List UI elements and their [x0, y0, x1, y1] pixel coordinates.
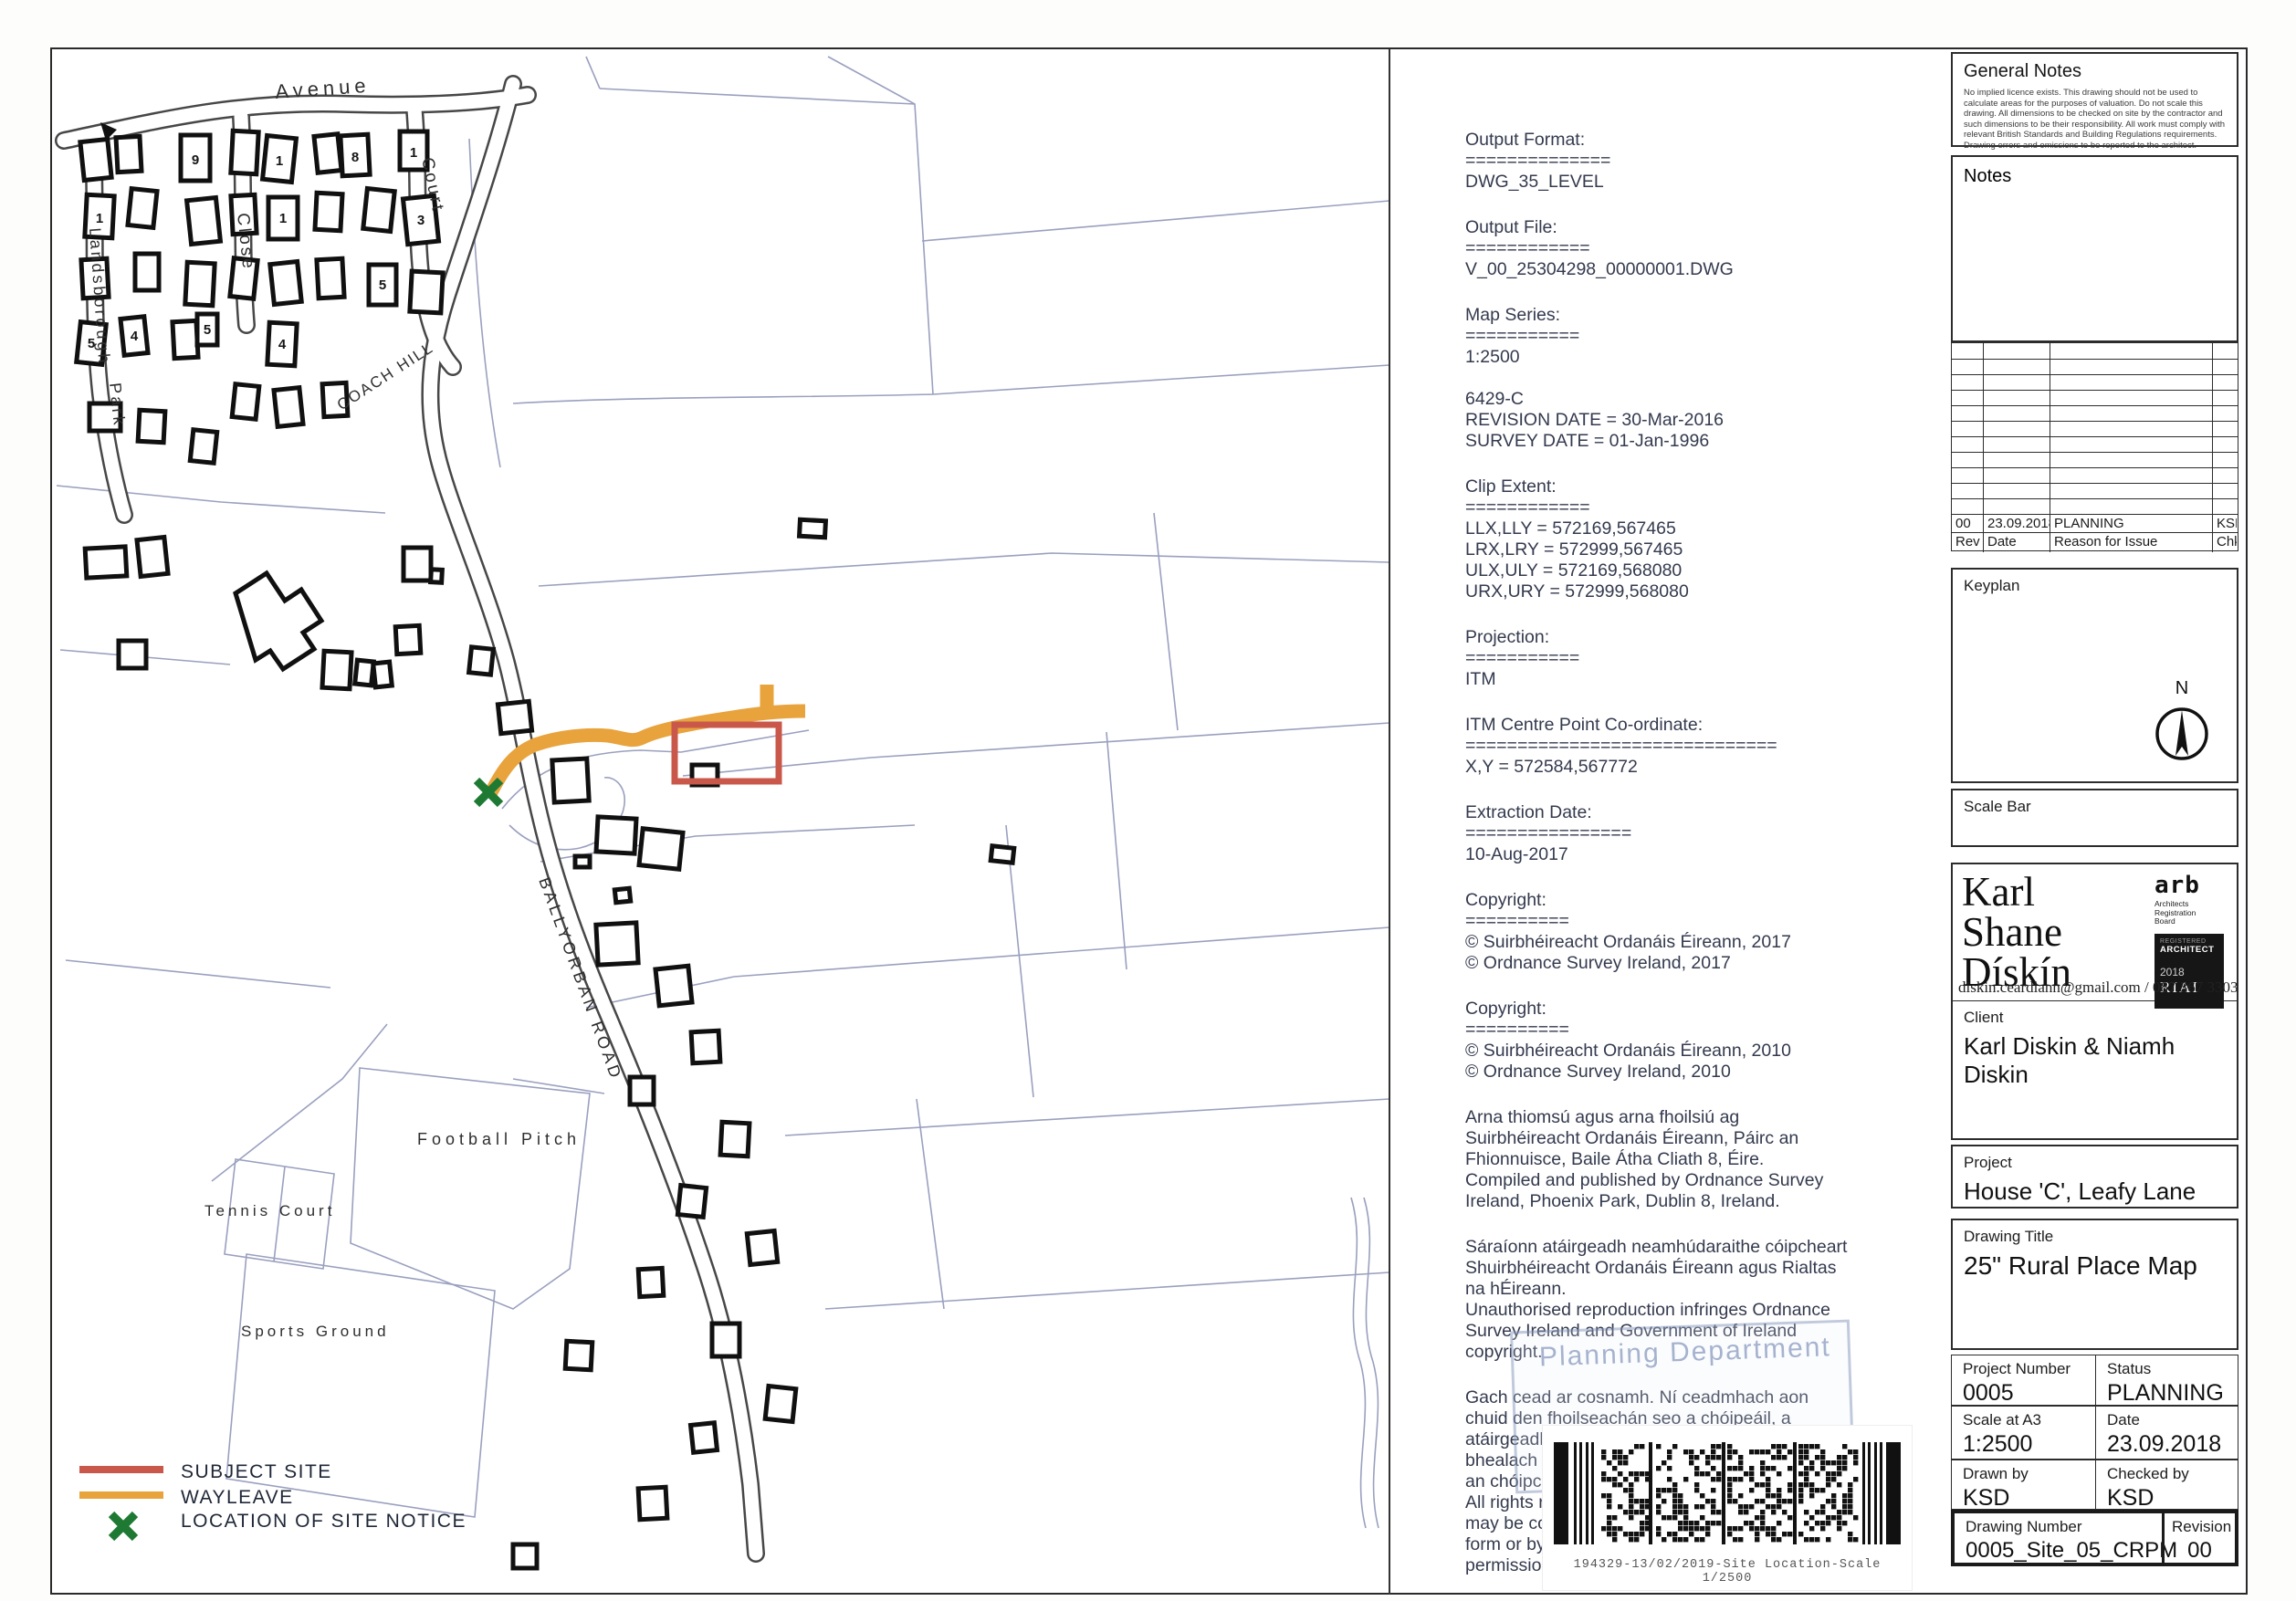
legend-label: WAYLEAVE: [181, 1487, 294, 1508]
drawing-number-cell: Drawing Number 0005_Site_05_CRPM: [1955, 1513, 2162, 1563]
notes-title: Notes: [1953, 157, 2237, 187]
north-arrow-icon: N: [2147, 677, 2217, 770]
client-label: Client: [1953, 1001, 2237, 1027]
riai-registered-architect-badge: REGISTERED ARCHITECT 2018 RIAI: [2154, 934, 2224, 1009]
architect-contact: diskin.ceardlann@gmail.com / 087 367 330…: [1958, 978, 2235, 997]
scale-bar-box: Scale Bar: [1951, 789, 2238, 847]
map-house-number: 3: [417, 213, 425, 228]
barcode-image: [1554, 1439, 1901, 1548]
drawing-title-value: 25" Rural Place Map: [1953, 1246, 2237, 1281]
map-house-number: 5: [204, 322, 211, 338]
metadata-section: Clip Extent: ============ LLX,LLY = 5721…: [1465, 476, 1913, 602]
map-house-number: 1: [410, 145, 417, 161]
arb-logo-subtext: Architects Registration Board: [2154, 900, 2228, 926]
revision-row-empty: [1952, 452, 2238, 467]
drawing-title-label: Drawing Title: [1953, 1220, 2237, 1246]
revision-row-empty: [1952, 405, 2238, 421]
map-house-number: 5: [379, 277, 386, 293]
row-scale-date: Scale at A3 1:2500 Date 23.09.2018: [1951, 1406, 2238, 1460]
revision-row-empty: [1952, 421, 2238, 436]
keyplan-title: Keyplan: [1953, 570, 2237, 595]
scale-bar-title: Scale Bar: [1953, 790, 2237, 816]
project-number-cell: Project Number 0005: [1952, 1355, 2095, 1405]
map-house-number: 1: [279, 211, 287, 226]
general-notes-box: General Notes No implied licence exists.…: [1951, 52, 2238, 147]
metadata-section: Copyright: ========== © Suirbhéireacht O…: [1465, 890, 1913, 974]
revision-row-empty: [1952, 467, 2238, 483]
metadata-section: Output Format: ============== DWG_35_LEV…: [1465, 130, 1913, 193]
map-area-label: Football Pitch: [417, 1130, 581, 1148]
map-house-number: 4: [278, 337, 287, 352]
legend-swatch-subject-site: [79, 1466, 163, 1473]
barcode-caption: 194329-13/02/2019-Site Location-Scale 1/…: [1554, 1558, 1901, 1585]
client-value: Karl Diskin & Niamh Diskin: [1953, 1027, 2237, 1089]
map-house-number: 1: [276, 153, 283, 169]
map-legend: SUBJECT SITEWAYLEAVELOCATION OF SITE NOT…: [79, 1461, 467, 1538]
site-location-map: AvenueCloseCourtLandsboroughParkCOACH HI…: [52, 49, 1394, 1595]
legend-swatch-wayleave: [79, 1491, 163, 1499]
map-area-label: Tennis Court: [204, 1202, 335, 1219]
metadata-section: ITM Centre Point Co-ordinate: ==========…: [1465, 715, 1913, 778]
general-notes-title: General Notes: [1953, 54, 2237, 86]
row-drawing-number-revision: Drawing Number 0005_Site_05_CRPM Revisio…: [1951, 1510, 2238, 1566]
map-house-number: 5: [88, 336, 95, 351]
date-cell: Date 23.09.2018: [2095, 1407, 2239, 1459]
registration-barcode-label: 194329-13/02/2019-Site Location-Scale 1/…: [1543, 1426, 1912, 1590]
revision-row-empty: [1952, 374, 2238, 390]
row-project-number-status: Project Number 0005 Status PLANNING: [1951, 1355, 2238, 1406]
project-value: House 'C', Leafy Lane: [1953, 1172, 2237, 1206]
revision-row: 0023.09.2018PLANNINGKSD: [1952, 514, 2238, 532]
drawing-sheet-scan: AvenueCloseCourtLandsboroughParkCOACH HI…: [0, 0, 2296, 1601]
legend-site-notice-icon: [111, 1514, 135, 1538]
row-drawn-checked: Drawn by KSD Checked by KSD: [1951, 1460, 2238, 1510]
map-house-number: 8: [351, 150, 359, 165]
copyright-paragraph: Arna thiomsú agus arna fhoilsiú ag Suirb…: [1465, 1107, 1913, 1212]
project-box: Project House 'C', Leafy Lane: [1951, 1145, 2238, 1209]
revision-row-empty: [1952, 359, 2238, 374]
metadata-section: Copyright: ========== © Suirbhéireacht O…: [1465, 999, 1913, 1083]
title-block-grid: Project Number 0005 Status PLANNING Scal…: [1951, 1355, 2238, 1566]
metadata-section: Extraction Date: ================ 10-Aug…: [1465, 802, 1913, 865]
sheet-border: AvenueCloseCourtLandsboroughParkCOACH HI…: [50, 47, 2248, 1595]
revision-table: 0023.09.2018PLANNINGKSDRevDateReason for…: [1951, 342, 2238, 551]
map-house-number: 4: [131, 329, 139, 344]
revision-row-empty: [1952, 498, 2238, 514]
metadata-section: Output File: ============ V_00_25304298_…: [1465, 217, 1913, 280]
map-house-number: 9: [192, 152, 199, 168]
arb-logo: arb: [2154, 872, 2228, 899]
general-notes-body: No implied licence exists. This drawing …: [1953, 86, 2237, 151]
revision-row: RevDateReason for IssueChk: [1952, 532, 2238, 552]
map-area-label: Sports Ground: [241, 1323, 390, 1340]
checked-by-cell: Checked by KSD: [2095, 1460, 2239, 1509]
status-cell: Status PLANNING: [2095, 1355, 2239, 1405]
revision-row-empty: [1952, 343, 2238, 359]
legend-label: LOCATION OF SITE NOTICE: [181, 1511, 467, 1532]
map-road-label: BALLYORBAN ROAD: [535, 875, 625, 1083]
stamp-title: Planning Department: [1538, 1332, 1848, 1374]
revision-row-empty: [1952, 436, 2238, 452]
map-house-number: 1: [96, 211, 103, 226]
scale-cell: Scale at A3 1:2500: [1952, 1407, 2095, 1459]
drawn-by-cell: Drawn by KSD: [1952, 1460, 2095, 1509]
client-cell: Client Karl Diskin & Niamh Diskin: [1953, 1001, 2237, 1138]
revision-row-empty: [1952, 483, 2238, 498]
north-label: N: [2175, 678, 2188, 698]
drawing-title-box: Drawing Title 25" Rural Place Map: [1951, 1219, 2238, 1350]
keyplan-box: Keyplan N: [1951, 568, 2238, 783]
architect-identity: Karl Shane Dískín arb Architects Registr…: [1953, 864, 2237, 1001]
notes-box: Notes: [1951, 155, 2238, 342]
metadata-section: Projection: =========== ITM: [1465, 627, 1913, 690]
metadata-section: Map Series: =========== 1:2500 6429-C RE…: [1465, 305, 1913, 452]
revision-row-empty: [1952, 390, 2238, 405]
architect-brand-box: Karl Shane Dískín arb Architects Registr…: [1951, 863, 2238, 1140]
project-label: Project: [1953, 1146, 2237, 1172]
legend-label: SUBJECT SITE: [181, 1461, 332, 1482]
revision-cell: Revision 00: [2162, 1513, 2235, 1563]
